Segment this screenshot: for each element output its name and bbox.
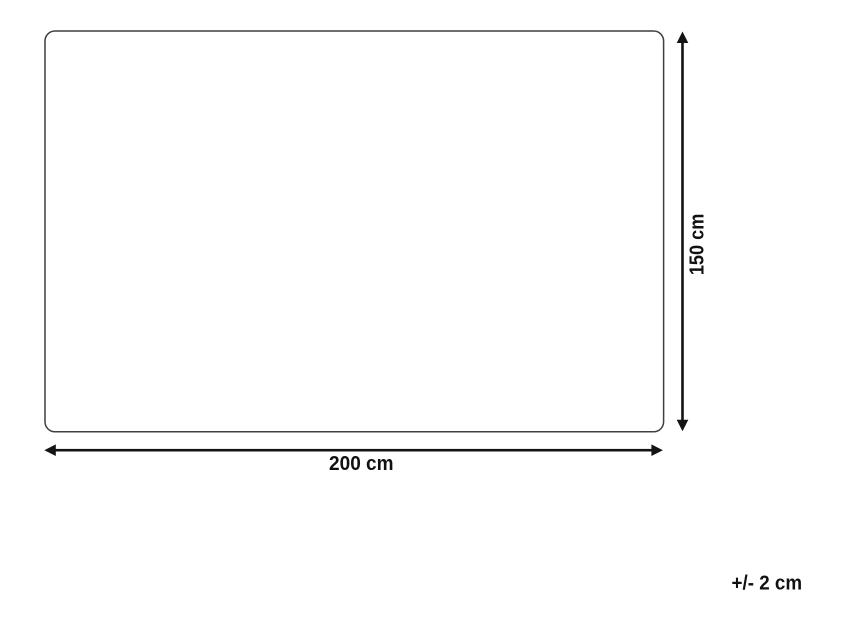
svg-text:150 cm: 150 cm: [686, 214, 709, 276]
svg-text:+/- 2 cm: +/- 2 cm: [732, 573, 803, 595]
svg-text:200 cm: 200 cm: [329, 452, 394, 475]
